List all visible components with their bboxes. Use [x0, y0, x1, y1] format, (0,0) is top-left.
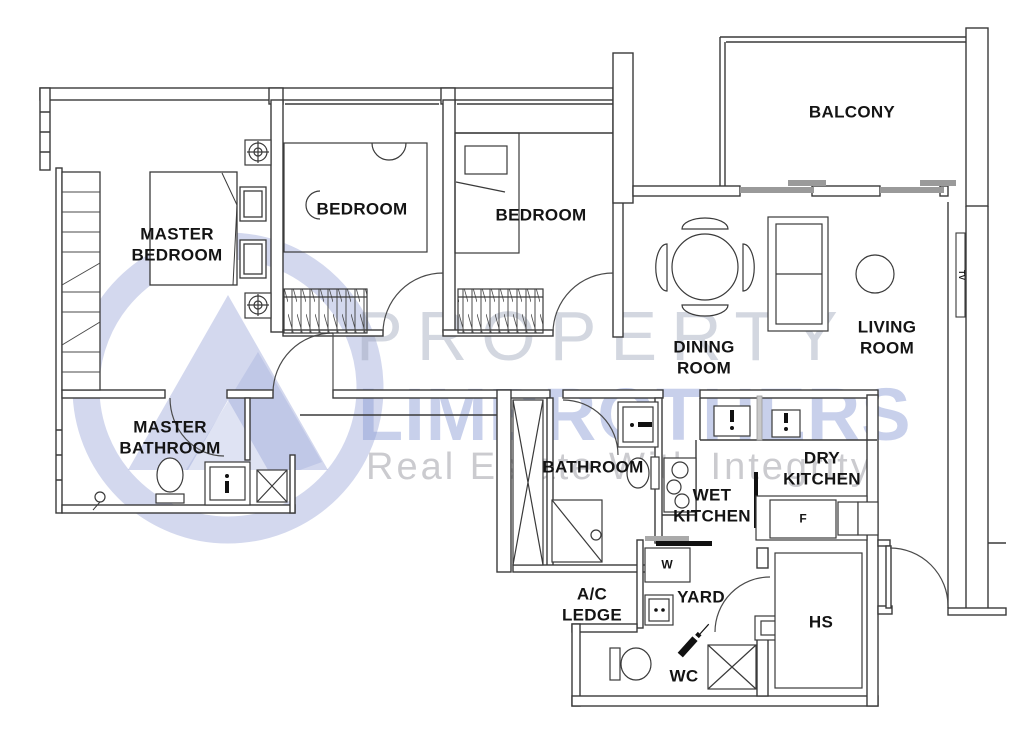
ac-ledge-shaft	[513, 400, 543, 565]
dry-kitchen-counter	[756, 496, 878, 540]
side-table	[856, 255, 894, 293]
room-label-master-bathroom: MASTER BATHROOM	[119, 417, 220, 460]
yard-threshold-gray	[645, 536, 689, 541]
room-label-dining-room: DINING ROOM	[673, 337, 734, 380]
room-label-bedroom-1: BEDROOM	[317, 198, 408, 219]
room-label-dry-kitchen: DRY KITCHEN	[783, 448, 861, 491]
room-label-balcony: BALCONY	[809, 101, 895, 122]
room-label-master-bedroom: MASTER BEDROOM	[132, 224, 223, 267]
room-label-wet-kitchen: WET KITCHEN	[673, 485, 751, 528]
bedroom1-door-arc	[383, 273, 443, 333]
counter-divider	[757, 396, 762, 440]
fixture-label-washer: W	[661, 557, 672, 572]
master-wardrobe	[62, 172, 100, 390]
master-bathroom-fixtures	[93, 458, 287, 510]
sofa	[768, 217, 828, 331]
dining-table	[656, 218, 754, 316]
room-label-ac-ledge: A/C LEDGE	[562, 584, 622, 627]
room-label-hs: HS	[809, 611, 833, 632]
bedroom1-furniture	[284, 143, 427, 333]
entry-door-arc	[890, 548, 948, 606]
bathroom-door-arc	[563, 400, 618, 455]
bedroom2-bed	[455, 133, 543, 333]
room-label-bedroom-2: BEDROOM	[496, 204, 587, 225]
room-label-bathroom: BATHROOM	[542, 456, 643, 477]
room-label-wc: WC	[670, 665, 699, 686]
room-label-yard: YARD	[677, 586, 725, 607]
floorplan: PROPERTY LIMBROTHERS Real Estate With In…	[0, 0, 1024, 746]
master-suite-door-arc	[273, 333, 333, 393]
bedroom2-door-arc	[553, 273, 613, 333]
fixture-label-fridge: F	[799, 511, 806, 526]
yard-threshold-black	[656, 541, 712, 546]
fixture-label-tv: TV	[956, 270, 966, 280]
bathroom-fixtures	[552, 402, 659, 562]
room-label-living-room: LIVING ROOM	[858, 317, 916, 360]
aircon-unit-icon	[245, 140, 271, 318]
